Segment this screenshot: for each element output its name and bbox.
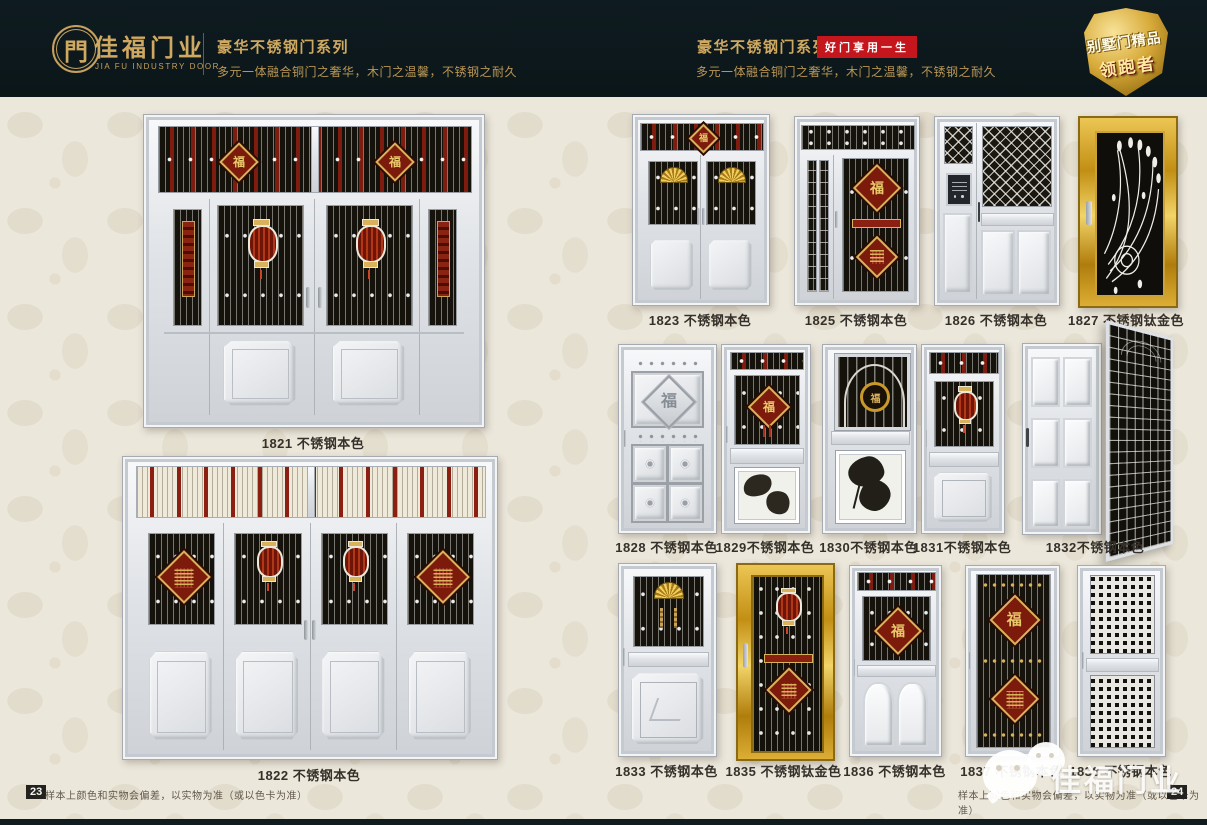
door-label-1822: 1822 不锈钢本色 — [100, 765, 518, 784]
diamond-ornament — [416, 550, 470, 604]
door-photo-1827 — [1078, 116, 1178, 308]
grille-window — [234, 533, 301, 626]
mid-rail — [981, 213, 1054, 226]
fu-character: 福 — [870, 181, 884, 195]
firecracker-ornament — [182, 221, 196, 297]
door-handle — [854, 659, 856, 676]
panel-etching — [416, 661, 465, 733]
door-handle — [306, 287, 310, 309]
header-bar: 門 佳福门业 JIA FU INDUSTRY DOOR 豪华不锈钢门系列 多元一… — [0, 0, 1207, 97]
lantern-cap — [349, 576, 362, 581]
side-grille-strip — [807, 160, 817, 292]
full-grille: 福 — [976, 574, 1051, 749]
bottom-edge-strip — [0, 819, 1207, 825]
lantern-cap — [363, 261, 379, 267]
lantern-ornament — [248, 225, 278, 263]
embossed-panel — [236, 652, 298, 740]
raised-panel — [865, 684, 891, 745]
door-photo-1826 — [934, 116, 1060, 306]
grille-window — [934, 381, 993, 447]
door-leaf — [1022, 343, 1102, 535]
gold-tassel — [674, 608, 677, 629]
fu-character: 福 — [233, 156, 245, 168]
embossed-panel — [224, 341, 295, 405]
door-handle — [726, 426, 728, 443]
panel-etching — [341, 349, 397, 400]
knot-pattern — [782, 683, 797, 698]
door-seam — [700, 155, 701, 299]
diamond-ornament: 福 — [643, 375, 697, 429]
lantern-cap — [959, 419, 971, 424]
door-photo-1831 — [921, 344, 1005, 534]
lantern-ornament — [954, 391, 978, 421]
mid-rail — [857, 665, 935, 677]
red-bar-ornament — [852, 219, 900, 229]
motif-row — [635, 360, 701, 368]
knot-pattern — [174, 568, 193, 587]
lantern-tassel — [260, 270, 262, 280]
flower-motif — [645, 498, 655, 508]
diamond-ornament: 福 — [689, 124, 719, 154]
disclaimer-left: 样本上颜色和实物会偏差，以实物为准（或以色卡为准） — [45, 787, 308, 802]
watermark: 佳福门业 — [975, 740, 1205, 812]
lantern-ornament — [257, 546, 283, 578]
raised-panel — [899, 684, 925, 745]
embossed-panel — [934, 473, 991, 522]
door-handle — [697, 208, 700, 225]
door-photo-1837: 福 — [965, 565, 1060, 757]
raised-panel — [1065, 481, 1090, 527]
grille-window: 福 — [734, 375, 799, 445]
door-handle — [624, 430, 626, 447]
firecracker-ornament — [437, 221, 451, 297]
lantern-cap — [262, 576, 275, 581]
door-handle — [702, 208, 705, 225]
series-tagline-left: 多元一体融合铜门之奢华，木门之温馨，不锈钢之耐久 — [217, 63, 517, 80]
flower-motif — [680, 498, 690, 508]
watermark-text: 佳福门业 — [1051, 756, 1183, 800]
gold-fan-ornament — [718, 167, 746, 183]
brand-name-english: JIA FU INDUSTRY DOOR — [95, 62, 220, 71]
series-tagline-right: 多元一体融合铜门之奢华，木门之温馨，不锈钢之耐久 — [696, 63, 996, 80]
door-handle — [1082, 652, 1084, 669]
main-grille-window — [217, 205, 304, 326]
gold-fan-ornament — [660, 167, 688, 183]
small-panel — [671, 448, 699, 480]
knot-pattern — [433, 568, 452, 587]
slogan-badge: 好门享用一生 — [817, 36, 917, 58]
transom-grille — [801, 125, 915, 151]
door-photo-1833 — [618, 563, 717, 757]
grille-window — [321, 533, 388, 626]
diamond-ornament: 福 — [219, 142, 259, 182]
intercom-button — [954, 195, 957, 198]
grille-window — [648, 161, 698, 226]
transom-grille — [730, 352, 804, 371]
door-seam — [310, 523, 311, 750]
lattice-window — [944, 126, 973, 164]
panel-etching — [330, 661, 379, 733]
mid-rail — [628, 652, 710, 666]
door-handle — [743, 643, 749, 668]
door-handle — [926, 430, 928, 447]
catalog-spread: 門 佳福门业 JIA FU INDUSTRY DOOR 豪华不锈钢门系列 多元一… — [0, 0, 1207, 825]
etched-panel — [835, 450, 906, 523]
intercom-panel — [946, 173, 972, 205]
flower-motif — [645, 459, 655, 469]
transom-grille — [857, 572, 935, 591]
grille-window — [407, 533, 474, 626]
fu-character: 福 — [661, 394, 677, 410]
lantern-cap — [782, 620, 795, 625]
door-photo-1822 — [122, 456, 498, 760]
mid-rail — [1086, 658, 1159, 671]
door-label-1832: 1832不锈钢本色 — [998, 537, 1192, 556]
panel-etching — [243, 661, 292, 733]
mesh-panel — [1090, 675, 1155, 747]
raised-panel — [1065, 420, 1090, 466]
door-seam — [419, 199, 420, 414]
side-grille-window — [173, 209, 202, 326]
side-grille-window — [428, 209, 457, 326]
mid-rail — [730, 448, 804, 463]
door-photo-1829: 福 — [721, 344, 811, 534]
embossed-panel — [150, 652, 212, 740]
door-seam — [976, 123, 977, 300]
series-title-right: 豪华不锈钢门系列 — [697, 36, 829, 57]
door-seam — [314, 199, 315, 414]
fu-character: 福 — [891, 624, 905, 638]
red-bar-ornament — [764, 654, 813, 664]
door-photo-1836: 福 — [849, 565, 942, 757]
lattice-window — [982, 126, 1052, 207]
diamond-ornament: 福 — [874, 607, 922, 655]
embossed-panel — [709, 240, 751, 289]
lantern-ornament — [776, 592, 802, 622]
door-label-1821: 1821 不锈钢本色 — [121, 433, 505, 452]
raised-panel — [1033, 420, 1058, 466]
door-label-1823: 1823 不锈钢本色 — [610, 310, 790, 329]
arch-grille-window: 福 — [835, 354, 910, 430]
door-photo-1828: 福 — [618, 344, 717, 534]
door-seam — [223, 523, 224, 750]
gold-fan-ornament — [654, 582, 684, 599]
series-title-left: 豪华不锈钢门系列 — [217, 36, 349, 57]
panel-etching — [157, 661, 206, 733]
raised-panel — [1065, 359, 1090, 405]
main-grille-window — [326, 205, 413, 326]
door-seam — [833, 155, 834, 300]
door-handle — [304, 620, 308, 640]
diamond-ornament: 福 — [853, 164, 901, 212]
transom-post — [311, 126, 319, 194]
mid-rail — [929, 452, 998, 467]
mid-rail — [831, 431, 909, 444]
transom-post — [307, 466, 314, 518]
transom-grille — [929, 352, 998, 375]
grille-window — [633, 576, 705, 647]
door-handle — [835, 211, 837, 228]
small-panel — [635, 448, 663, 480]
grille-window: 福 — [862, 596, 931, 661]
fu-character: 福 — [1008, 612, 1023, 627]
knot-pattern — [1007, 691, 1024, 708]
diamond-ornament — [767, 668, 812, 713]
tassel — [763, 425, 765, 437]
intercom-grille — [952, 179, 968, 192]
grille-window — [706, 161, 756, 226]
embossed-panel — [333, 341, 404, 405]
small-panel — [671, 487, 699, 519]
fu-character: 福 — [870, 390, 880, 405]
mesh-panel — [1090, 575, 1155, 655]
door-photo-1821: 福福 — [143, 114, 485, 428]
door-handle — [623, 648, 625, 665]
lantern-tassel — [368, 270, 370, 280]
tassel — [769, 425, 771, 437]
gold-dot-row — [981, 732, 1046, 739]
full-grille — [751, 575, 823, 754]
door-handle — [318, 287, 322, 309]
diamond-ornament: 福 — [990, 594, 1041, 645]
door-photo-1838 — [1077, 565, 1166, 757]
raised-panel — [1033, 481, 1058, 527]
screen-arch-ornament — [1116, 331, 1165, 364]
panel-etching — [942, 480, 985, 517]
lantern-ornament — [356, 225, 386, 263]
award-shield-badge: 别墅门精品 领跑者 — [1078, 8, 1174, 96]
embossed-panel — [651, 240, 693, 289]
small-panel — [635, 487, 663, 519]
fu-character: 福 — [763, 400, 775, 412]
fu-character: 福 — [389, 156, 401, 168]
raised-panel — [945, 215, 970, 292]
door-label-1836: 1836 不锈钢本色 — [827, 761, 962, 780]
knot-pattern — [870, 250, 884, 264]
lantern-ornament — [343, 546, 369, 578]
door-photo-1823: 福 — [632, 114, 770, 306]
diamond-ornament: 福 — [748, 385, 790, 427]
logo-door-glyph: 門 — [64, 32, 88, 67]
raised-panel — [983, 232, 1013, 294]
panel-etching — [232, 349, 288, 400]
square-panel: 福 — [635, 375, 699, 424]
door-label-1826: 1826 不锈钢本色 — [912, 310, 1080, 329]
door-photo-1830: 福 — [822, 344, 917, 534]
diamond-ornament: 福 — [375, 142, 415, 182]
transom-grille: 福 — [640, 123, 764, 152]
fu-character: 福 — [699, 134, 708, 143]
door-photo-1835 — [736, 563, 835, 761]
door-photo-1825: 福 — [794, 116, 920, 306]
diamond-ornament — [856, 236, 898, 278]
etched-panel — [734, 467, 799, 524]
diamond-ornament — [991, 675, 1039, 723]
embossed-panel — [322, 652, 384, 740]
door-seam — [396, 523, 397, 750]
door-handle — [978, 202, 980, 223]
peacock-panel — [1095, 131, 1164, 297]
lantern-tassel — [963, 425, 965, 432]
main-grille-window: 福 — [842, 158, 908, 292]
raised-panel — [1019, 232, 1049, 294]
lantern-tassel — [267, 583, 269, 591]
grille-window — [148, 533, 215, 626]
raised-panel — [1033, 359, 1058, 405]
door-handle — [312, 620, 316, 640]
brand-logo-icon: 門 — [52, 25, 100, 73]
door-handle — [1086, 201, 1092, 225]
intercom-button — [961, 195, 964, 198]
door-seam — [209, 199, 210, 414]
embossed-panel — [409, 652, 471, 740]
flower-motif — [680, 459, 690, 469]
door-handle — [969, 652, 971, 669]
embossed-panel — [632, 673, 704, 744]
lantern-cap — [254, 261, 270, 267]
gold-dot-row — [981, 658, 1046, 665]
lantern-tassel — [786, 627, 788, 634]
page-number-left: 23 — [26, 785, 46, 799]
lantern-tassel — [353, 583, 355, 591]
door-handle — [1026, 428, 1029, 447]
side-grille-strip — [819, 160, 829, 292]
open-screen-leaf — [1106, 320, 1173, 562]
peacock-scroll-art — [1097, 133, 1162, 295]
brand-name: 佳福门业 — [94, 28, 206, 63]
header-divider — [203, 33, 204, 75]
mid-rail-line — [164, 332, 463, 334]
gold-tassel — [660, 608, 663, 629]
door-photo-1832 — [1020, 340, 1170, 536]
gold-dot-row — [981, 582, 1046, 589]
diamond-ornament — [157, 550, 211, 604]
motif-row — [635, 433, 701, 441]
